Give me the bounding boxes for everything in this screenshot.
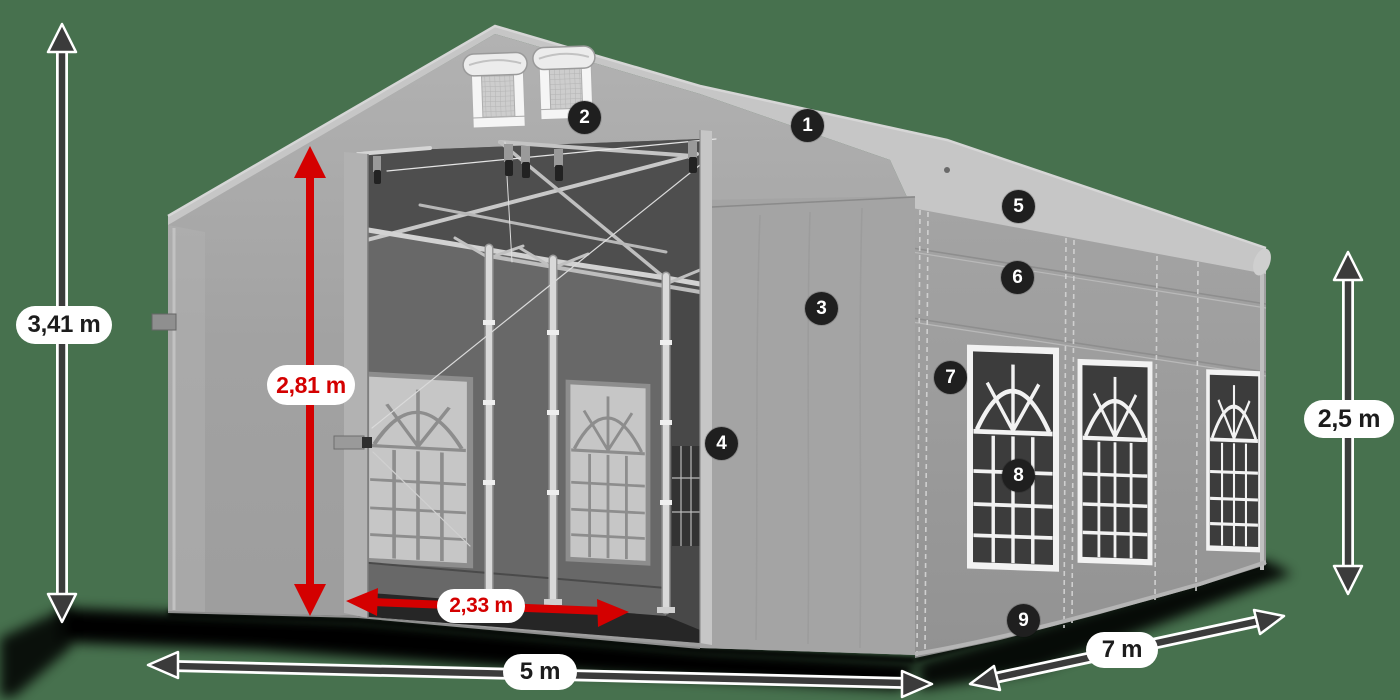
product-image: 3,41 m 2,81 m 2,33 m 5 m 7 m 2,5 m 1 2 3… <box>0 0 1400 700</box>
callout-marker-4[interactable]: 4 <box>705 427 738 460</box>
callout-marker-5[interactable]: 5 <box>1002 190 1035 223</box>
callout-marker-7[interactable]: 7 <box>934 361 967 394</box>
interior-window-right <box>568 382 648 563</box>
dimension-label-entrance-width: 2,33 m <box>437 589 525 623</box>
callout-marker-3[interactable]: 3 <box>805 292 838 325</box>
dimension-label-entrance-height: 2,81 m <box>267 365 355 405</box>
callout-marker-6[interactable]: 6 <box>1001 261 1034 294</box>
callout-marker-9[interactable]: 9 <box>1007 604 1040 637</box>
side-window-3 <box>1208 372 1260 550</box>
callout-marker-2[interactable]: 2 <box>568 101 601 134</box>
dimension-label-total-height: 3,41 m <box>16 306 112 344</box>
side-window-1 <box>970 348 1056 568</box>
dimension-label-front-width: 5 m <box>503 654 577 690</box>
callout-marker-8[interactable]: 8 <box>1002 459 1035 492</box>
callout-marker-1[interactable]: 1 <box>791 109 824 142</box>
dimension-label-side-length: 7 m <box>1086 632 1158 668</box>
tent-illustration <box>0 0 1400 700</box>
interior-window-left <box>366 374 470 566</box>
dimension-label-side-height: 2,5 m <box>1304 400 1394 438</box>
entrance-opening <box>358 139 716 643</box>
interior-side-window <box>672 446 700 546</box>
side-window-2 <box>1080 362 1150 562</box>
roof-vent-1 <box>463 52 530 128</box>
